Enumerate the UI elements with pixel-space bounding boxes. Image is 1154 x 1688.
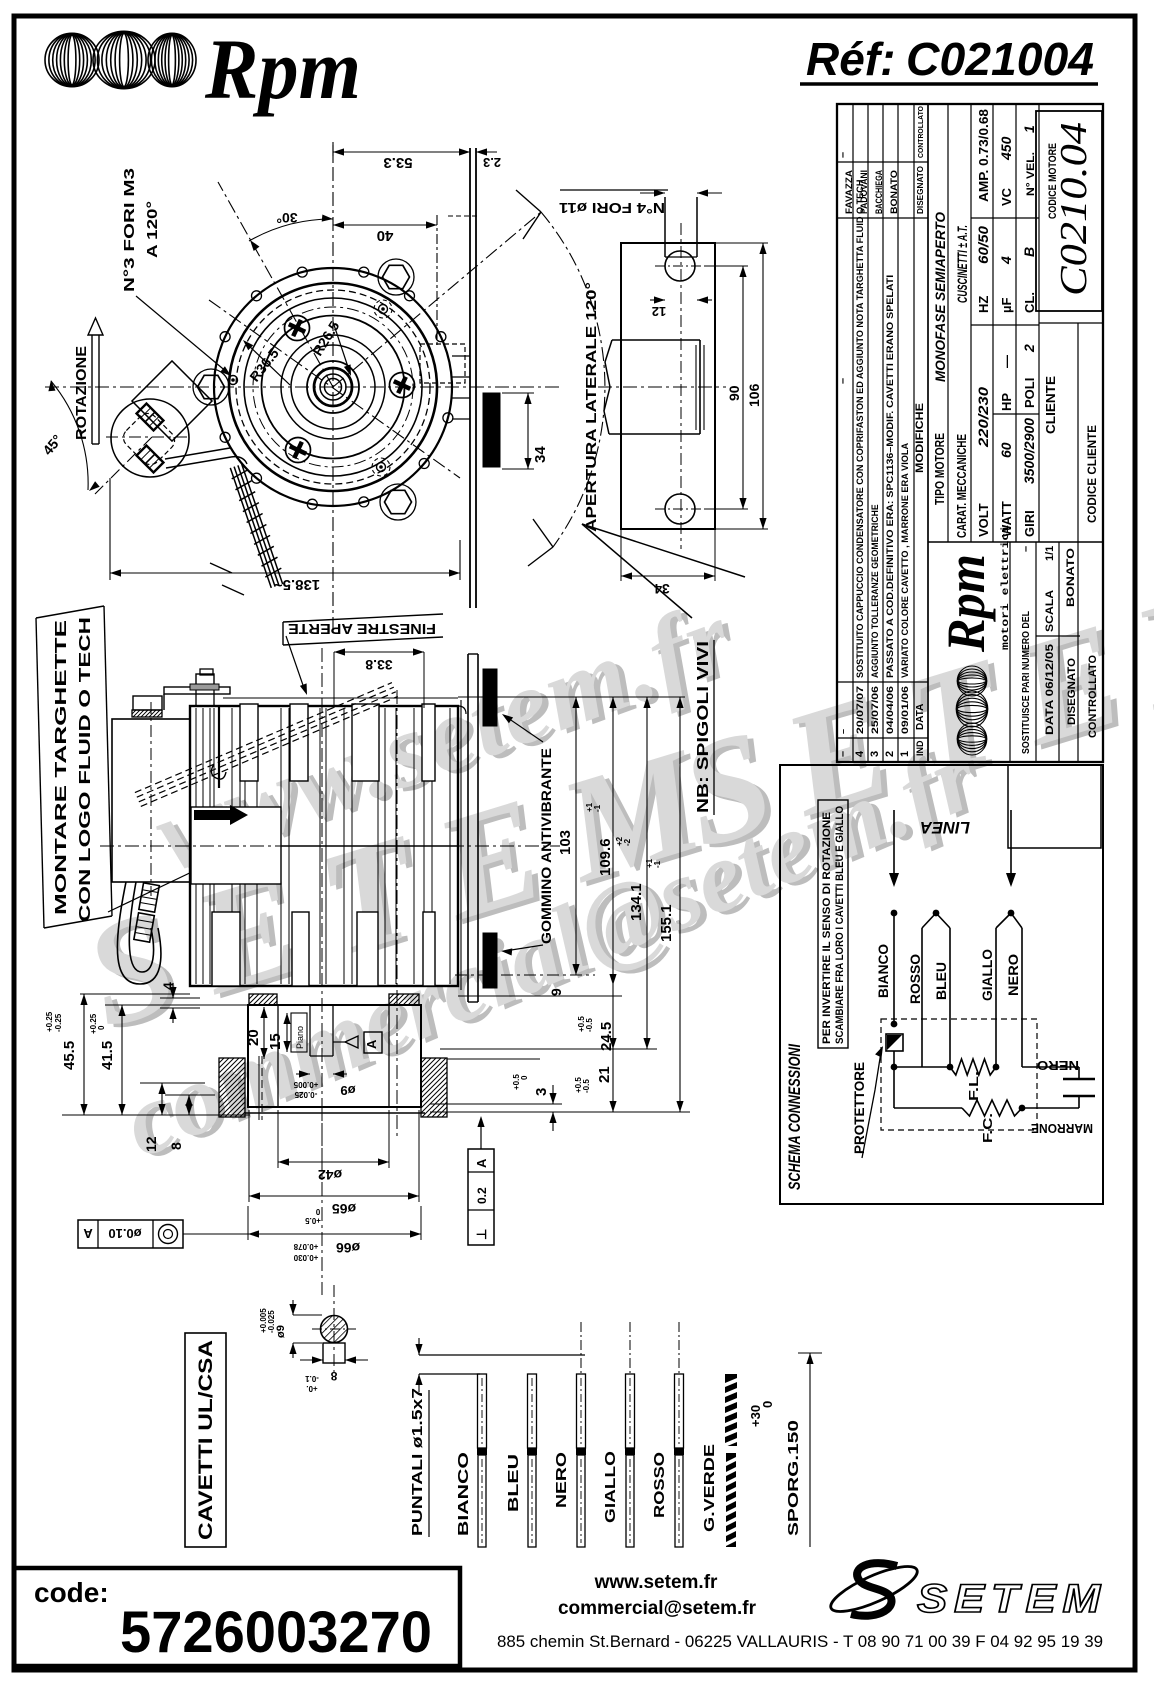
svg-text:MODIFICHE: MODIFICHE [914, 403, 926, 473]
svg-text:-1: -1 [593, 804, 602, 812]
svg-text:BONATO: BONATO [889, 170, 899, 214]
svg-text:TIPO MOTORE: TIPO MOTORE [932, 433, 947, 505]
svg-text:45.5: 45.5 [61, 1041, 78, 1070]
svg-text:3: 3 [869, 751, 881, 757]
svg-text:SOSTITUISCE PARI NUMERO DEL: SOSTITUISCE PARI NUMERO DEL [1021, 611, 1032, 754]
svg-text:04/04/06: 04/04/06 [885, 686, 895, 734]
svg-text:106: 106 [746, 383, 762, 407]
svg-text:2.3: 2.3 [483, 155, 501, 170]
svg-text:APERTURA LATERALE 120°: APERTURA LATERALE 120° [583, 282, 600, 532]
svg-text:-2: -2 [623, 838, 632, 846]
svg-text:4: 4 [160, 982, 176, 990]
svg-text:ø65: ø65 [332, 1201, 356, 1217]
svg-text:SCALA: SCALA [1044, 590, 1056, 632]
svg-text:BLEU: BLEU [505, 1454, 522, 1512]
svg-text:-0.5: -0.5 [585, 1018, 594, 1032]
svg-text:90: 90 [726, 385, 742, 401]
svg-text:FINESTRE APERTE: FINESTRE APERTE [288, 620, 436, 637]
svg-text:15: 15 [267, 1033, 284, 1050]
svg-text:ø9: ø9 [275, 1325, 287, 1338]
svg-text:SCAMBIARE FRA LORO I CAVETTI B: SCAMBIARE FRA LORO I CAVETTI BLEU E GIAL… [834, 806, 846, 1044]
svg-text:0.2: 0.2 [475, 1187, 489, 1204]
svg-text:GIALLO: GIALLO [979, 949, 995, 1001]
svg-text:Réf:: Réf: [806, 33, 895, 85]
svg-text:60: 60 [998, 442, 1014, 458]
svg-text:AMP. 0.73/0.68: AMP. 0.73/0.68 [976, 109, 991, 202]
svg-text:60/50: 60/50 [975, 226, 991, 264]
svg-text:B: B [1021, 247, 1037, 257]
svg-text:0: 0 [97, 1025, 106, 1030]
svg-text:BLEU: BLEU [933, 962, 949, 1000]
svg-text:IND: IND [915, 740, 925, 756]
svg-text:450: 450 [998, 136, 1014, 161]
svg-text:2: 2 [884, 751, 896, 757]
svg-text:30°: 30° [276, 210, 297, 226]
svg-text:MONOFASE SEMIAPERTO: MONOFASE SEMIAPERTO [932, 212, 948, 382]
svg-text:PASSATO A COD.DEFINITIVO ERA:: PASSATO A COD.DEFINITIVO ERA: SPC1136–MO… [885, 275, 895, 678]
svg-text:CODICE CLIENTE: CODICE CLIENTE [1085, 425, 1099, 523]
svg-text:CON LOGO FLUID O TECH: CON LOGO FLUID O TECH [77, 617, 94, 922]
svg-text:2: 2 [1021, 344, 1037, 353]
svg-text:220/230: 220/230 [975, 387, 991, 448]
svg-text:AGGIUNTO TOLLERANZE GEOMETRICH: AGGIUNTO TOLLERANZE GEOMETRICHE [870, 504, 880, 678]
svg-text:PER INVERTIRE IL SENSO DI ROTA: PER INVERTIRE IL SENSO DI ROTAZIONE [821, 812, 833, 1044]
svg-text:BIANCO: BIANCO [875, 944, 891, 998]
svg-text:CL.: CL. [1022, 292, 1037, 313]
svg-text:Rpm: Rpm [204, 21, 361, 117]
svg-text:www.setem.fr: www.setem.fr [594, 1572, 718, 1593]
svg-text:BIANCO: BIANCO [455, 1452, 472, 1536]
svg-text:DISEGNATO: DISEGNATO [916, 166, 925, 214]
svg-text:3500/2900: 3500/2900 [1021, 418, 1037, 484]
svg-text:⊥: ⊥ [474, 1229, 489, 1240]
svg-text:A 120°: A 120° [144, 201, 161, 258]
svg-text:134.1: 134.1 [628, 883, 645, 921]
svg-text:24.5: 24.5 [598, 1022, 615, 1051]
svg-text:109.6: 109.6 [597, 838, 614, 876]
svg-text:HZ: HZ [976, 296, 991, 313]
svg-text:FAVAZZA: FAVAZZA [844, 169, 854, 214]
svg-text:NERO: NERO [1037, 1058, 1079, 1073]
svg-text:ø0.10: ø0.10 [108, 1226, 141, 1241]
svg-text:+0.25: +0.25 [45, 1011, 54, 1032]
svg-text:NB: SPIGOLI VIVI: NB: SPIGOLI VIVI [695, 641, 712, 813]
svg-text:VARIATO COLORE CAVETTO , MARRO: VARIATO COLORE CAVETTO , MARRONE ERA VIO… [900, 442, 910, 678]
svg-text:ø9: ø9 [340, 1083, 355, 1098]
svg-text:20: 20 [245, 1029, 262, 1046]
svg-text:PUNTALI ø1.5x7: PUNTALI ø1.5x7 [409, 1388, 426, 1536]
svg-text:DISEGNATO: DISEGNATO [1066, 658, 1078, 725]
svg-text:PADOVANI: PADOVANI [859, 170, 869, 214]
svg-text:C021004: C021004 [906, 33, 1094, 85]
svg-text:MARRONE: MARRONE [1031, 1121, 1093, 1136]
svg-text:motori elettrici: motori elettrici [1000, 525, 1012, 650]
svg-text:DATA: DATA [915, 704, 926, 730]
svg-text:34: 34 [532, 446, 549, 463]
svg-text:G.VERDE: G.VERDE [701, 1444, 718, 1532]
svg-text:-0.1: -0.1 [305, 1374, 319, 1383]
svg-text:-1: -1 [653, 860, 662, 868]
svg-text:33.8: 33.8 [365, 657, 392, 673]
svg-text:–: – [838, 729, 848, 734]
svg-text:138.5~: 138.5~ [274, 576, 321, 593]
svg-text:µF: µF [999, 298, 1014, 313]
svg-text:CUSCINETTI ± A.T.: CUSCINETTI ± A.T. [954, 225, 970, 303]
svg-text:0: 0 [760, 1401, 775, 1408]
svg-text:-0.5: -0.5 [582, 1079, 591, 1093]
svg-text:+0.: +0. [306, 1384, 317, 1393]
svg-text:155.1: 155.1 [658, 904, 675, 942]
svg-text:GIRI: GIRI [1022, 510, 1037, 537]
svg-text:PROTETTORE: PROTETTORE [851, 1062, 867, 1154]
svg-text:commercial@setem.fr: commercial@setem.fr [558, 1598, 757, 1619]
svg-text:12: 12 [143, 1136, 159, 1152]
svg-text:8: 8 [168, 1142, 184, 1150]
svg-text:VOLT: VOLT [976, 503, 991, 537]
svg-text:885 chemin St.Bernard - 0622: 885 chemin St.Bernard - 06225 VALLAURIS … [497, 1632, 1103, 1651]
svg-text:20/07/07: 20/07/07 [855, 686, 865, 734]
svg-text:–: – [837, 378, 849, 384]
svg-text:–: – [837, 751, 849, 757]
svg-text:F.C.: F.C. [980, 1113, 995, 1143]
svg-text:40: 40 [377, 227, 394, 244]
svg-text:1/1: 1/1 [1044, 546, 1056, 561]
svg-text:1: 1 [1021, 125, 1037, 133]
svg-text:Piano: Piano [295, 1026, 305, 1049]
svg-text:CONTROLLATO: CONTROLLATO [1087, 655, 1099, 738]
svg-text:NERO: NERO [553, 1452, 570, 1508]
svg-text:ROTAZIONE: ROTAZIONE [73, 346, 90, 440]
svg-text:ø66: ø66 [336, 1240, 360, 1256]
svg-text:+0.005: +0.005 [293, 1080, 318, 1089]
svg-text:CLIENTE: CLIENTE [1043, 376, 1058, 434]
svg-text:SCHEMA CONNESSIONI: SCHEMA CONNESSIONI [785, 1043, 804, 1190]
svg-text:A: A [474, 1158, 489, 1168]
svg-text:CARAT. MECCANICHE: CARAT. MECCANICHE [954, 434, 969, 538]
svg-text:F.L.: F.L. [966, 1071, 981, 1101]
svg-text:GOMMINO ANTIVIBRANTE: GOMMINO ANTIVIBRANTE [538, 748, 554, 944]
svg-text:3: 3 [533, 1088, 550, 1096]
svg-text:N°3 FORI M3: N°3 FORI M3 [121, 168, 138, 292]
svg-text:CAVETTI UL/CSA: CAVETTI UL/CSA [196, 1340, 217, 1540]
svg-text:ROSSO: ROSSO [651, 1452, 668, 1518]
svg-text:-0.025: -0.025 [294, 1090, 317, 1099]
svg-text:–: – [837, 152, 849, 158]
svg-text:A: A [364, 1039, 379, 1049]
svg-text:Rpm: Rpm [936, 554, 996, 653]
svg-text:09/01/06: 09/01/06 [900, 686, 910, 734]
svg-text:+0.030: +0.030 [293, 1253, 318, 1262]
svg-text:8: 8 [330, 1369, 337, 1383]
svg-text:5726003270: 5726003270 [120, 1600, 432, 1665]
svg-text:code:: code: [34, 1577, 109, 1608]
svg-text:-0.25: -0.25 [54, 1013, 63, 1032]
svg-text:103: 103 [557, 830, 574, 855]
svg-text:N°4 FORI ø11: N°4 FORI ø11 [559, 199, 665, 216]
svg-text:DATA 06/12/05: DATA 06/12/05 [1044, 644, 1056, 735]
svg-text:N° VEL.: N° VEL. [1025, 152, 1037, 196]
svg-text:41.5: 41.5 [99, 1041, 116, 1070]
svg-text:BACCHIEGA: BACCHIEGA [874, 170, 884, 214]
svg-text:9: 9 [548, 988, 564, 996]
svg-text:12: 12 [652, 304, 666, 319]
svg-text:53.3: 53.3 [383, 154, 412, 171]
svg-text:SOSTITUITO CAPPUCCIO CONDENSAT: SOSTITUITO CAPPUCCIO CONDENSATORE CON CO… [855, 180, 865, 678]
svg-text:HP: HP [999, 393, 1014, 411]
svg-text:MONTARE TARGHETTE: MONTARE TARGHETTE [53, 619, 70, 915]
svg-text:4: 4 [854, 750, 866, 757]
svg-text:4: 4 [998, 256, 1014, 265]
svg-text:ø42: ø42 [318, 1167, 342, 1183]
svg-text:0: 0 [520, 1075, 529, 1080]
svg-text:VC: VC [999, 187, 1014, 206]
svg-text:SETEM: SETEM [917, 1577, 1107, 1621]
svg-text:LINEA: LINEA [920, 818, 970, 837]
svg-text:–: – [1020, 546, 1032, 552]
svg-text:ROSSO: ROSSO [907, 954, 923, 1004]
svg-text:21: 21 [596, 1066, 613, 1083]
svg-text:—: — [999, 355, 1014, 368]
svg-text:BONATO: BONATO [1065, 547, 1077, 607]
svg-text:0: 0 [315, 1207, 320, 1216]
svg-text:+0.078: +0.078 [293, 1242, 318, 1251]
svg-text:C0210.04: C0210.04 [1053, 122, 1095, 296]
svg-text:CONTROLLATO: CONTROLLATO [916, 106, 925, 158]
svg-text:SPORG.150: SPORG.150 [785, 1420, 802, 1536]
svg-text:POLI: POLI [1022, 378, 1037, 408]
svg-text:1: 1 [899, 751, 911, 757]
svg-text:NERO: NERO [1005, 954, 1021, 996]
svg-text:GIALLO: GIALLO [602, 1451, 619, 1523]
svg-text:34: 34 [654, 581, 670, 597]
svg-text:25/07/06: 25/07/06 [870, 686, 880, 734]
svg-text:+0.5: +0.5 [305, 1216, 321, 1225]
svg-text:A: A [83, 1226, 93, 1241]
